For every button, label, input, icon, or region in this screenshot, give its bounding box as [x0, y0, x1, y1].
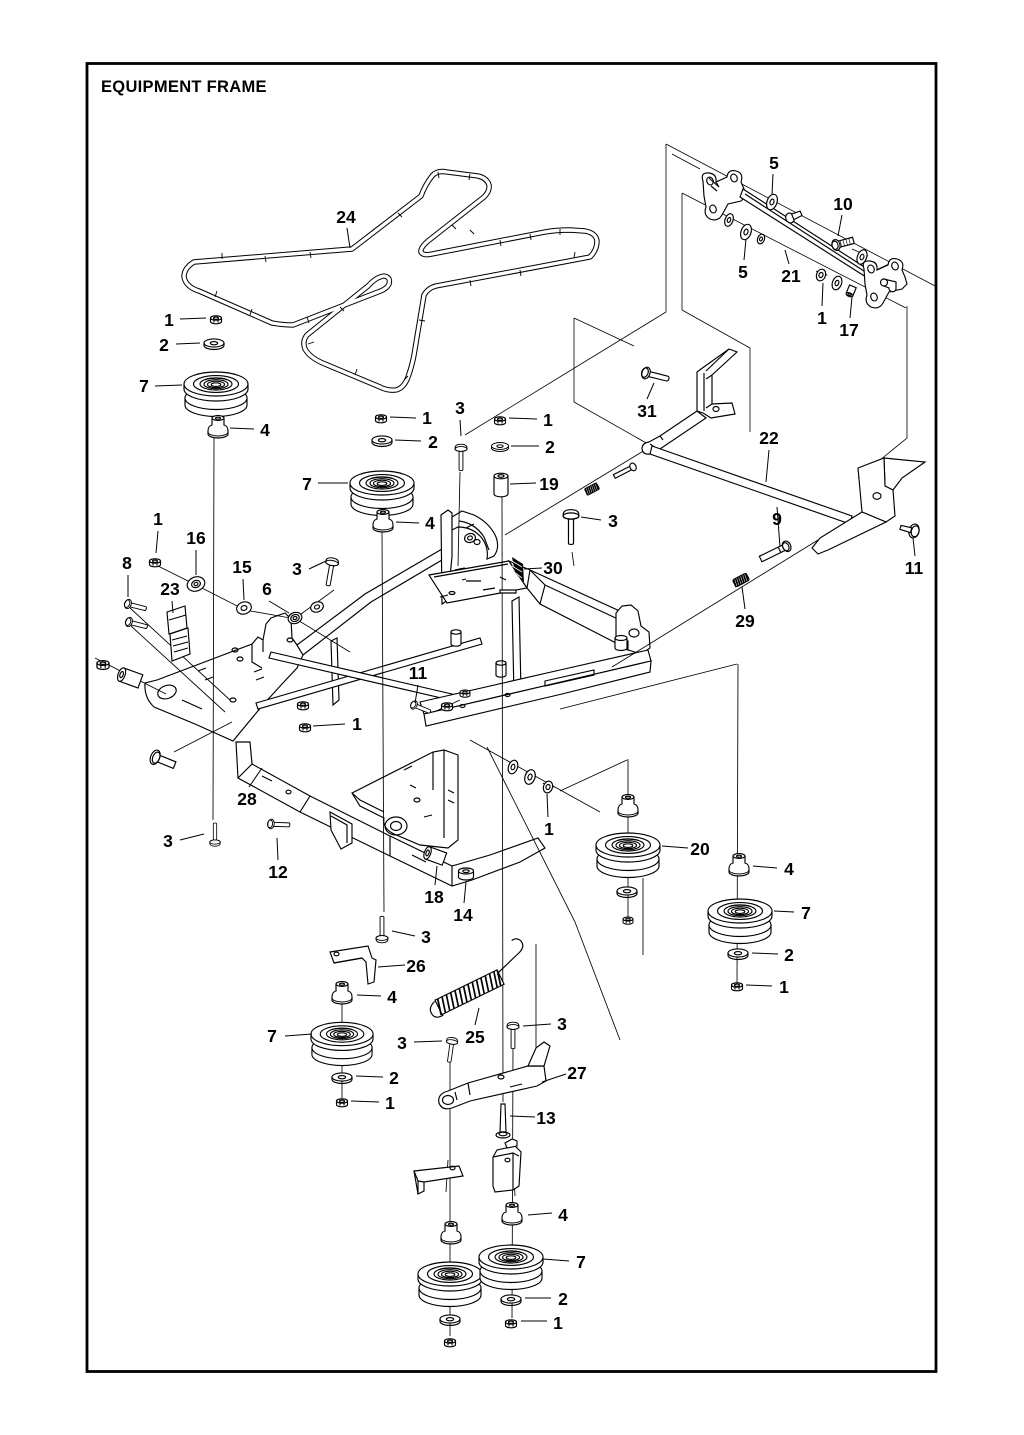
svg-text:17: 17 [839, 320, 858, 340]
svg-text:1: 1 [817, 308, 827, 328]
svg-text:14: 14 [453, 905, 473, 925]
svg-text:5: 5 [769, 153, 779, 173]
svg-text:19: 19 [539, 474, 559, 494]
svg-text:24: 24 [336, 207, 356, 227]
svg-text:2: 2 [545, 437, 555, 457]
svg-text:1: 1 [779, 977, 789, 997]
svg-text:4: 4 [558, 1205, 568, 1225]
svg-text:7: 7 [576, 1252, 586, 1272]
svg-text:9: 9 [772, 509, 782, 529]
svg-text:1: 1 [553, 1313, 563, 1333]
svg-text:EQUIPMENT FRAME: EQUIPMENT FRAME [101, 78, 267, 96]
svg-text:30: 30 [543, 558, 563, 578]
svg-text:26: 26 [406, 956, 426, 976]
svg-text:1: 1 [543, 410, 553, 430]
svg-text:1: 1 [544, 819, 554, 839]
svg-text:20: 20 [690, 839, 710, 859]
svg-text:11: 11 [409, 663, 428, 683]
svg-text:1: 1 [385, 1093, 395, 1113]
svg-text:15: 15 [232, 557, 252, 577]
svg-text:3: 3 [608, 511, 618, 531]
svg-text:7: 7 [139, 376, 149, 396]
svg-text:2: 2 [159, 335, 169, 355]
svg-text:3: 3 [455, 398, 465, 418]
svg-text:4: 4 [387, 987, 397, 1007]
svg-text:27: 27 [567, 1063, 586, 1083]
svg-text:5: 5 [738, 262, 748, 282]
svg-text:2: 2 [428, 432, 438, 452]
svg-text:10: 10 [833, 194, 853, 214]
svg-text:3: 3 [421, 927, 431, 947]
svg-text:4: 4 [260, 420, 270, 440]
svg-text:31: 31 [637, 401, 657, 421]
svg-text:4: 4 [425, 513, 435, 533]
svg-text:23: 23 [160, 579, 180, 599]
svg-text:1: 1 [352, 714, 362, 734]
svg-text:3: 3 [163, 831, 173, 851]
svg-text:3: 3 [557, 1014, 567, 1034]
svg-text:21: 21 [781, 266, 801, 286]
svg-text:1: 1 [164, 310, 174, 330]
svg-text:1: 1 [422, 408, 432, 428]
svg-text:2: 2 [784, 945, 794, 965]
svg-text:18: 18 [424, 887, 444, 907]
svg-text:16: 16 [186, 528, 206, 548]
svg-text:29: 29 [735, 611, 755, 631]
svg-text:2: 2 [389, 1068, 399, 1088]
svg-text:3: 3 [292, 559, 302, 579]
svg-text:7: 7 [302, 474, 312, 494]
svg-text:7: 7 [801, 903, 811, 923]
svg-text:2: 2 [558, 1289, 568, 1309]
svg-text:8: 8 [122, 553, 132, 573]
svg-text:6: 6 [262, 579, 272, 599]
svg-text:4: 4 [784, 859, 794, 879]
svg-text:12: 12 [268, 862, 288, 882]
svg-text:13: 13 [536, 1108, 556, 1128]
svg-text:3: 3 [397, 1033, 407, 1053]
svg-text:7: 7 [267, 1026, 277, 1046]
svg-text:22: 22 [759, 428, 779, 448]
svg-text:11: 11 [905, 558, 924, 578]
svg-text:1: 1 [153, 509, 163, 529]
svg-text:25: 25 [465, 1027, 485, 1047]
svg-text:28: 28 [237, 789, 257, 809]
